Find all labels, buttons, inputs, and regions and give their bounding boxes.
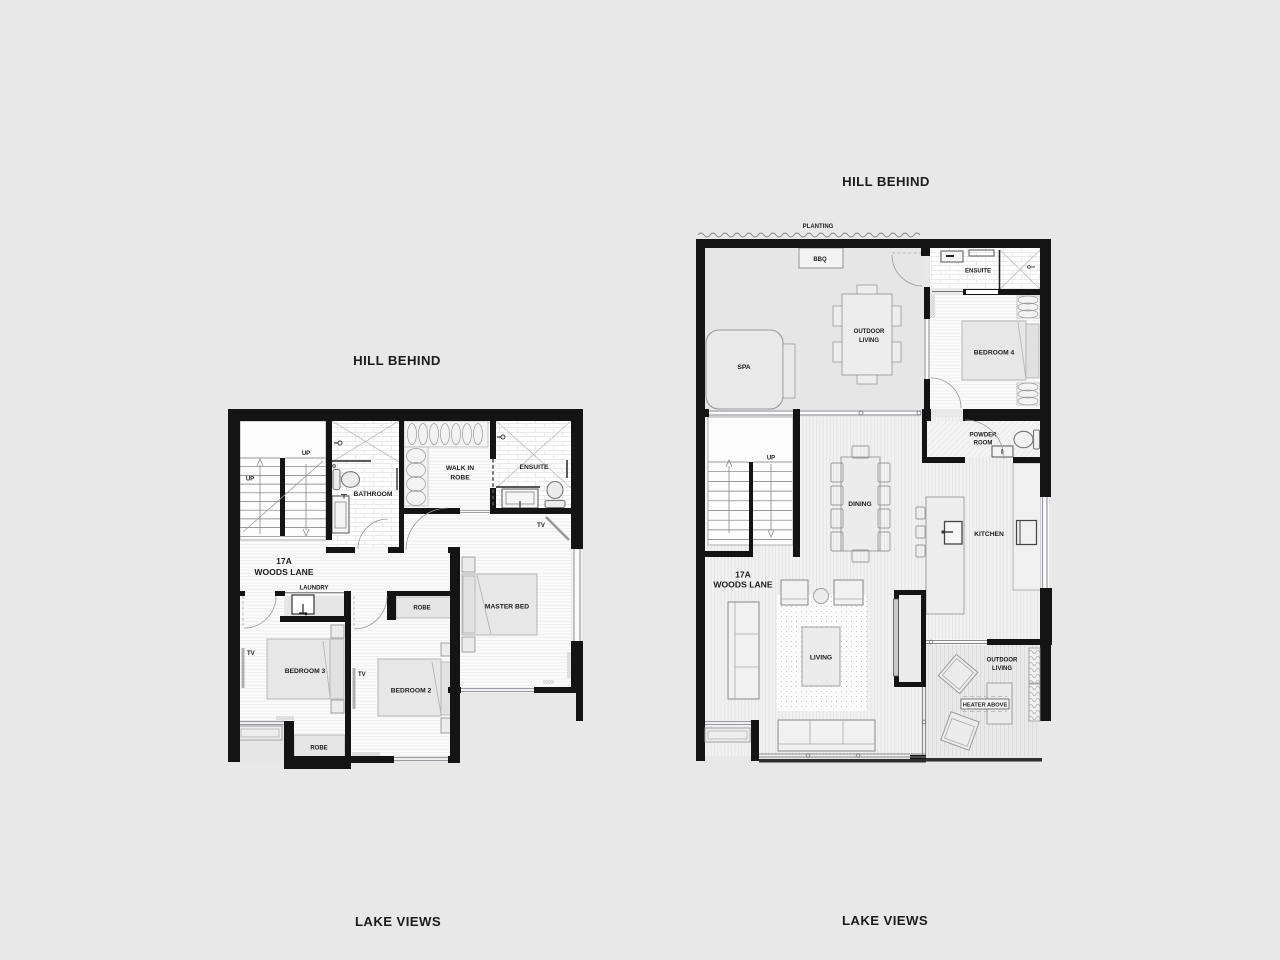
svg-text:WOODS LANE: WOODS LANE xyxy=(713,580,772,590)
svg-text:17A: 17A xyxy=(735,570,751,580)
svg-text:UP: UP xyxy=(246,477,254,483)
svg-text:BBQ: BBQ xyxy=(813,257,827,263)
svg-text:WALK IN: WALK IN xyxy=(446,465,474,472)
svg-text:DINING: DINING xyxy=(848,501,871,508)
svg-text:SPA: SPA xyxy=(737,364,750,371)
svg-text:BEDROOM 3: BEDROOM 3 xyxy=(285,668,326,675)
svg-text:OUTDOOR: OUTDOOR xyxy=(854,329,885,335)
svg-text:OUTDOOR: OUTDOOR xyxy=(987,658,1018,664)
svg-text:HILL BEHIND: HILL BEHIND xyxy=(842,174,930,189)
svg-text:TV: TV xyxy=(537,523,545,529)
svg-text:POWDER: POWDER xyxy=(970,433,998,439)
svg-text:ROOM: ROOM xyxy=(974,441,993,447)
svg-text:ENSUITE: ENSUITE xyxy=(965,269,991,275)
svg-text:LAKE VIEWS: LAKE VIEWS xyxy=(355,914,441,929)
svg-text:UP: UP xyxy=(767,456,775,462)
svg-text:TV: TV xyxy=(358,672,366,678)
svg-text:LIVING: LIVING xyxy=(992,666,1012,672)
svg-text:TV: TV xyxy=(247,651,255,657)
svg-text:LAUNDRY: LAUNDRY xyxy=(299,586,328,592)
svg-text:HILL BEHIND: HILL BEHIND xyxy=(353,353,441,368)
svg-text:BATHROOM: BATHROOM xyxy=(354,491,393,498)
svg-text:UP: UP xyxy=(302,451,310,457)
svg-text:BEDROOM 2: BEDROOM 2 xyxy=(391,688,432,695)
svg-text:17A: 17A xyxy=(276,556,292,566)
svg-text:MASTER BED: MASTER BED xyxy=(485,604,529,611)
svg-text:ENSUITE: ENSUITE xyxy=(520,464,550,471)
svg-text:ROBE: ROBE xyxy=(450,475,470,482)
svg-text:HEATER ABOVE: HEATER ABOVE xyxy=(963,702,1008,708)
svg-text:KITCHEN: KITCHEN xyxy=(974,531,1004,538)
svg-text:LAKE VIEWS: LAKE VIEWS xyxy=(842,913,928,928)
svg-text:PLANTING: PLANTING xyxy=(803,224,834,230)
svg-text:ROBE: ROBE xyxy=(310,746,327,752)
svg-text:LIVING: LIVING xyxy=(859,338,879,344)
svg-text:BEDROOM 4: BEDROOM 4 xyxy=(974,350,1015,357)
svg-text:WOODS LANE: WOODS LANE xyxy=(254,567,313,577)
svg-text:LIVING: LIVING xyxy=(810,655,832,662)
svg-text:ROBE: ROBE xyxy=(413,606,430,612)
